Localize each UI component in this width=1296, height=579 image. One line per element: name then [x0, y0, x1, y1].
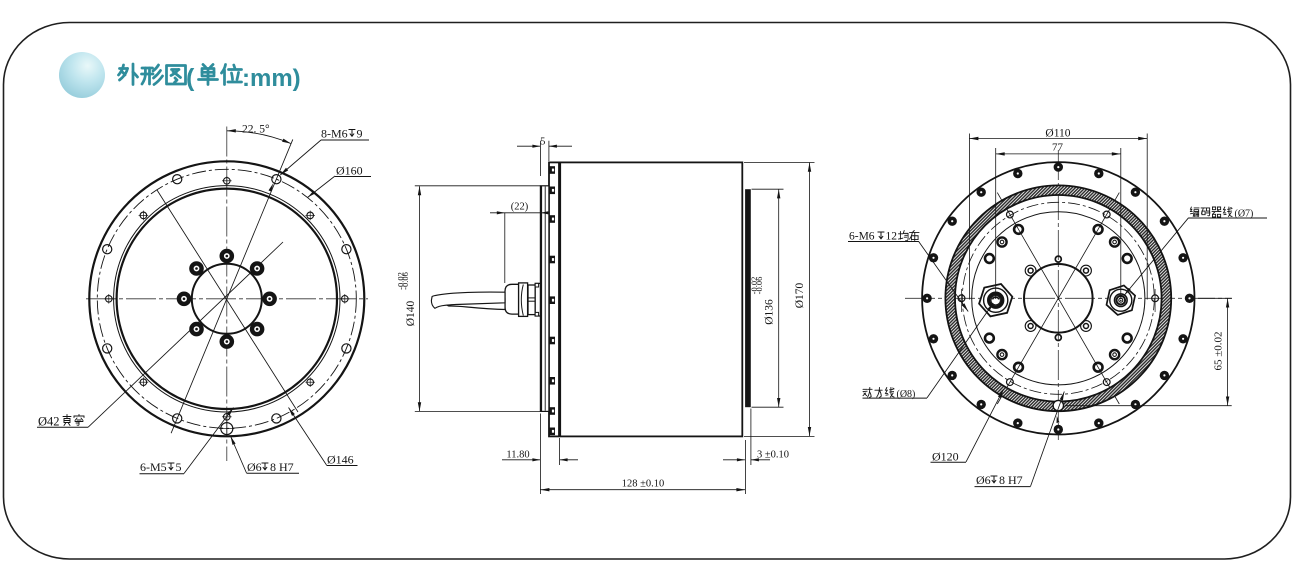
svg-text:3 ±0.10: 3 ±0.10 [757, 450, 789, 461]
svg-text:128 ±0.10: 128 ±0.10 [622, 479, 665, 490]
svg-text:5: 5 [540, 137, 545, 148]
svg-text:8 H7: 8 H7 [270, 460, 294, 474]
svg-text:12: 12 [886, 231, 898, 243]
svg-text:Ø120: Ø120 [932, 450, 959, 464]
svg-text:6-M6: 6-M6 [849, 231, 875, 243]
svg-text:Ø146: Ø146 [327, 453, 354, 467]
svg-text:Ø170: Ø170 [794, 282, 806, 308]
svg-text:11.80: 11.80 [506, 450, 529, 461]
svg-text:Ø6: Ø6 [976, 473, 991, 487]
svg-text:(: ( [186, 64, 195, 92]
svg-text::mm): :mm) [242, 65, 301, 92]
svg-text:5: 5 [176, 460, 182, 474]
svg-text:8 H7: 8 H7 [999, 473, 1023, 487]
svg-text:(22): (22) [511, 202, 529, 213]
svg-text:22. 5°: 22. 5° [242, 124, 270, 136]
svg-text:Ø140: Ø140 [405, 300, 417, 326]
svg-text:-0.06: -0.06 [754, 277, 764, 295]
svg-text:Ø110: Ø110 [1045, 128, 1070, 140]
svg-text:65 ±0.02: 65 ±0.02 [1212, 331, 1224, 370]
svg-text:6-M5: 6-M5 [140, 460, 167, 474]
svg-text:Ø136: Ø136 [763, 299, 775, 325]
svg-text:Ø6: Ø6 [247, 460, 262, 474]
svg-text:Ø160: Ø160 [336, 164, 363, 178]
svg-text:Ø42: Ø42 [38, 415, 60, 429]
svg-text:-0.06: -0.06 [400, 272, 410, 290]
svg-text:8-M6: 8-M6 [321, 127, 348, 141]
svg-text:9: 9 [357, 127, 363, 141]
svg-text:77: 77 [1052, 142, 1064, 154]
